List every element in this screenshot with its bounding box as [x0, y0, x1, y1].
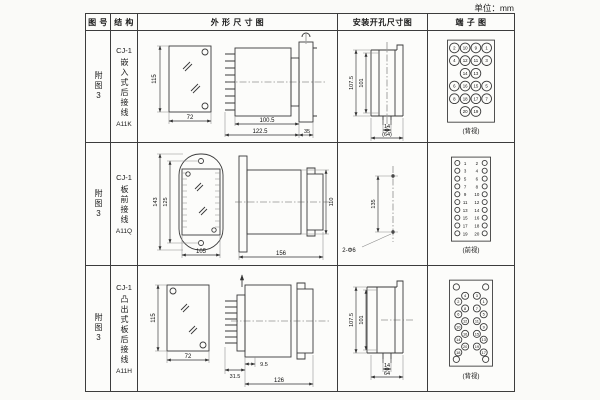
outline-svg-row3: 115 72 31.5 9.5 126 [139, 267, 337, 390]
terminal-number: 16 [463, 83, 468, 88]
terminal-number: 3 [464, 169, 467, 174]
terminal-number: 20 [474, 231, 479, 236]
terminal-number: 4 [464, 293, 467, 298]
terminal-number: 9 [464, 192, 467, 197]
view-caption: (背视) [463, 370, 480, 379]
figure-no-row1: 附图3 [86, 31, 111, 143]
terminal-number: 14 [474, 208, 479, 213]
terminal-number: 14 [456, 337, 461, 342]
terminal-number: 18 [463, 96, 468, 101]
structure-row2: CJ-1 板前接线 A11Q [111, 143, 138, 266]
terminal-number: 5 [485, 83, 488, 88]
side-view: 156 110 [235, 156, 335, 260]
terminal-number: 16 [463, 331, 467, 336]
front-view: 115 72 [151, 285, 209, 363]
outline-drawing-row3: 115 72 31.5 9.5 126 [138, 266, 338, 391]
terminal-number: 11 [463, 200, 468, 205]
structure-row3: CJ-1 凸出式板后接线 A11H [111, 266, 138, 391]
terminal-number: 20 [463, 108, 468, 113]
front-view: 143 125 105 [153, 154, 223, 258]
dim-total-depth: 122.5 [252, 129, 268, 135]
terminal-number: 15 [473, 83, 478, 88]
terminal-number: 10 [456, 324, 461, 329]
terminal-number: 6 [457, 311, 459, 316]
dim-front-width: 105 [195, 249, 206, 255]
install-drawing-row3: 107.5 101 14 64 [338, 266, 428, 391]
terminal-number: 3 [476, 293, 478, 298]
terminal-number: 17 [473, 96, 478, 101]
cutout-profile [371, 42, 403, 132]
terminal-number: 2 [457, 299, 459, 304]
dim-outer-height: 107.5 [349, 76, 355, 90]
dim-flange-height: 143 [153, 197, 159, 206]
terminal-strip [182, 173, 220, 227]
dim-body-depth: 100.5 [259, 118, 275, 124]
terminal-pins [225, 301, 237, 343]
terminal-number: 1 [483, 299, 485, 304]
header-outline-dims: 外 形 尺 寸 图 [138, 14, 338, 31]
terminal-number: 7 [485, 96, 488, 101]
outline-drawing-row2: 143 125 105 156 110 [138, 143, 338, 266]
type-code: A11Q [116, 228, 132, 235]
dim-hole-spacing: 135 [371, 199, 377, 208]
glass-mark [195, 183, 207, 215]
terminal-number: 5 [464, 177, 467, 182]
outline-svg-row1: 115 72 100.5 122.5 35 [139, 32, 337, 142]
structure-label: 凸出式板后接线 [120, 295, 128, 365]
model-label: CJ-1 [116, 173, 132, 182]
terminal-number: 9 [475, 45, 478, 50]
dim-inner-height: 101 [359, 315, 365, 324]
figure-no-label: 附图3 [94, 313, 102, 344]
terminal-circles: 1 2 3 4 5 6 7 8 9 10 11 12 13 14 15 16 1… [455, 160, 487, 236]
header-figure-no: 图 号 [86, 14, 111, 31]
type-code: A11K [116, 121, 131, 128]
glass-mark [181, 304, 197, 334]
type-code: A11H [116, 368, 132, 375]
install-drawing-row1: 107.5 101 14 (64) [338, 31, 428, 143]
terminal-number: 19 [463, 231, 468, 236]
terminal-svg-row2: 1 2 3 4 5 6 7 8 9 10 11 12 13 14 15 16 1… [428, 148, 514, 260]
structure-row1: CJ-1 嵌入式后接线 A11K [111, 31, 138, 143]
terminal-number: 20 [463, 343, 468, 348]
structure-label: 板前接线 [120, 185, 128, 225]
terminal-number: 13 [473, 70, 478, 75]
terminal-number: 4 [476, 169, 479, 174]
outline-svg-row2: 143 125 105 156 110 [139, 144, 337, 264]
cutout-profile [367, 281, 413, 363]
install-svg-row2: 135 2-Φ6 [339, 144, 427, 264]
terminal-number: 2 [476, 161, 479, 166]
terminal-number: 4 [453, 58, 456, 63]
front-view: 115 72 [152, 46, 211, 124]
terminal-number: 6 [453, 83, 456, 88]
terminal-number: 7 [476, 305, 478, 310]
terminal-number: 7 [464, 184, 467, 189]
dim-pin-length: 31.5 [229, 374, 240, 380]
figure-no-label: 附图3 [94, 189, 102, 220]
terminal-number: 12 [463, 318, 467, 323]
model-label: CJ-1 [116, 283, 132, 292]
terminal-svg-row1: 2 10 9 1 4 12 11 3 14 13 6 16 15 5 8 18 … [428, 33, 514, 141]
terminal-number: 8 [464, 305, 466, 310]
figure-no-row2: 附图3 [86, 143, 111, 266]
terminal-number: 11 [474, 58, 479, 63]
dim-front-width: 72 [184, 354, 191, 360]
dim-bottom-width: (64) [382, 132, 392, 138]
model-label: CJ-1 [116, 46, 132, 55]
terminal-number: 15 [463, 216, 468, 221]
terminal-number: 8 [453, 96, 456, 101]
terminal-number: 1 [485, 45, 488, 50]
terminal-number: 10 [474, 192, 479, 197]
dim-outer-height: 107.5 [349, 313, 355, 327]
mounting-hole [198, 159, 203, 164]
terminal-number: 11 [475, 318, 479, 323]
terminal-number: 5 [483, 311, 485, 316]
dimension-table: 图 号 结 构 外 形 尺 寸 图 安装开孔尺寸图 端 子 图 附图3 CJ-1… [85, 13, 515, 392]
dim-slot-width: 14 [383, 363, 389, 369]
terminal-number: 1 [464, 161, 467, 166]
dim-front-width: 72 [186, 115, 193, 121]
dim-flange-depth: 35 [303, 129, 309, 135]
structure-label: 嵌入式后接线 [120, 58, 128, 118]
install-svg-row1: 107.5 101 14 (64) [339, 32, 427, 142]
terminal-number: 12 [474, 200, 479, 205]
dim-front-height: 115 [151, 313, 157, 323]
terminal-number: 8 [476, 184, 479, 189]
figure-no-row3: 附图3 [86, 266, 111, 391]
outline-drawing-row1: 115 72 100.5 122.5 35 [138, 31, 338, 143]
terminal-drawing-row2: 1 2 3 4 5 6 7 8 9 10 11 12 13 14 15 16 1… [428, 143, 514, 266]
terminal-number: 19 [473, 108, 478, 113]
terminal-svg-row3: 2 4 3 1 6 8 7 5 10 12 11 9 14 16 15 13 1… [428, 269, 514, 389]
view-caption: (前视) [463, 245, 480, 254]
mounting-hole [198, 241, 203, 246]
dim-body-length: 156 [275, 251, 286, 257]
terminal-circles: 2 4 3 1 6 8 7 5 10 12 11 9 14 16 15 13 1… [455, 292, 487, 356]
terminal-number: 2 [453, 45, 456, 50]
install-svg-row3: 107.5 101 14 64 [339, 267, 427, 390]
header-terminal: 端 子 图 [428, 14, 514, 31]
terminal-drawing-row3: 2 4 3 1 6 8 7 5 10 12 11 9 14 16 15 13 1… [428, 266, 514, 391]
terminal-number: 17 [482, 349, 486, 354]
terminal-number: 18 [474, 223, 479, 228]
side-view: 100.5 122.5 35 [225, 33, 325, 138]
terminal-number: 19 [475, 343, 479, 348]
terminal-number: 17 [463, 223, 468, 228]
header-install-dims: 安装开孔尺寸图 [338, 14, 428, 31]
terminal-number: 16 [474, 216, 479, 221]
glass-mark [183, 62, 200, 93]
terminal-number: 14 [463, 70, 468, 75]
terminal-drawing-row1: 2 10 9 1 4 12 11 3 14 13 6 16 15 5 8 18 … [428, 31, 514, 143]
dim-front-height: 115 [152, 73, 158, 83]
terminal-number: 15 [475, 331, 479, 336]
terminal-number: 13 [463, 208, 468, 213]
dim-bottom-width: 64 [383, 371, 389, 377]
terminal-number: 12 [463, 58, 468, 63]
side-view: 31.5 9.5 126 [225, 275, 329, 387]
terminal-number: 3 [485, 58, 488, 63]
figure-no-label: 附图3 [94, 71, 102, 102]
dim-plate-offset: 9.5 [260, 362, 268, 368]
terminal-number: 13 [482, 337, 486, 342]
dim-hole-spacing: 125 [163, 197, 169, 206]
terminal-number: 10 [463, 45, 468, 50]
dim-slot-width: 14 [383, 124, 389, 130]
dim-inner-height: 101 [359, 78, 365, 87]
terminal-circles: 2 10 9 1 4 12 11 3 14 13 6 16 15 5 8 18 … [450, 43, 492, 116]
install-drawing-row2: 135 2-Φ6 [338, 143, 428, 266]
view-caption: (背视) [463, 125, 480, 134]
hole-callout: 2-Φ6 [342, 248, 356, 254]
terminal-number: 18 [456, 349, 460, 354]
dim-body-length: 126 [273, 378, 284, 384]
header-structure: 结 构 [111, 14, 138, 31]
dim-body-height: 110 [329, 198, 335, 207]
terminal-number: 6 [476, 177, 479, 182]
terminal-number: 9 [483, 324, 485, 329]
